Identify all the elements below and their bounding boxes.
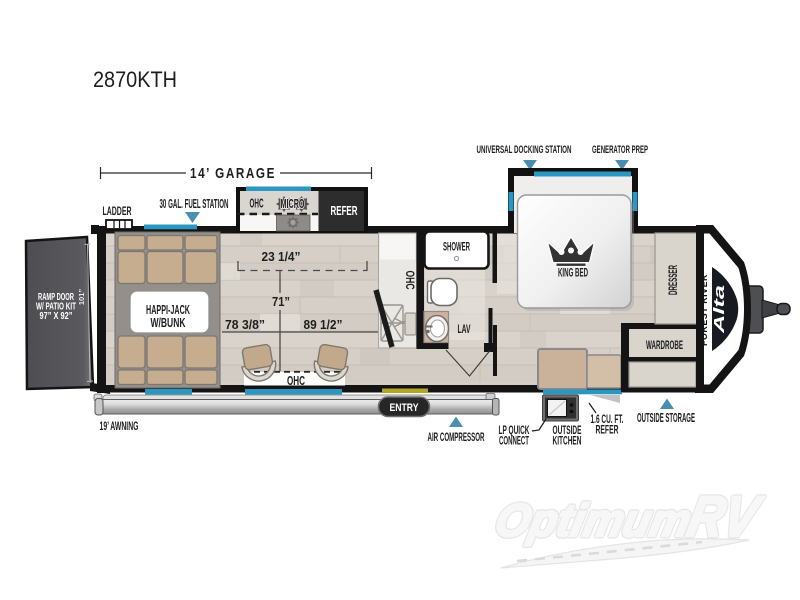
svg-text:DRESSER: DRESSER: [668, 265, 680, 295]
svg-text:OHC: OHC: [250, 196, 264, 211]
svg-text:Alta: Alta: [711, 285, 728, 335]
svg-text:OHC: OHC: [287, 373, 305, 388]
svg-text:W/BUNK: W/BUNK: [151, 315, 186, 330]
svg-text:97” X 92”: 97” X 92”: [40, 311, 73, 322]
svg-text:23 1/4”: 23 1/4”: [262, 249, 301, 264]
svg-text:14’ GARAGE: 14’ GARAGE: [190, 165, 276, 182]
svg-text:71”: 71”: [272, 294, 290, 309]
svg-text:19’ AWNING: 19’ AWNING: [100, 419, 139, 433]
svg-text:WARDROBE: WARDROBE: [646, 340, 683, 352]
svg-text:LAV: LAV: [458, 322, 471, 336]
svg-text:OHC: OHC: [403, 271, 417, 290]
svg-text:UNIVERSAL DOCKING STATION: UNIVERSAL DOCKING STATION: [477, 144, 572, 156]
svg-text:CONNECT: CONNECT: [499, 436, 529, 448]
svg-text:89 1/2”: 89 1/2”: [304, 317, 343, 332]
svg-text:LADDER: LADDER: [103, 204, 132, 218]
svg-text:AIR COMPRESSOR: AIR COMPRESSOR: [428, 430, 485, 444]
svg-text:SHOWER: SHOWER: [443, 240, 470, 254]
svg-text:KITCHEN: KITCHEN: [553, 436, 582, 448]
svg-text:MICRO: MICRO: [281, 197, 305, 211]
svg-text:30 GAL. FUEL STATION: 30 GAL. FUEL STATION: [160, 196, 229, 211]
svg-text:Optimum: Optimum: [491, 494, 696, 545]
svg-text:101”: 101”: [77, 289, 86, 306]
svg-text:ENTRY: ENTRY: [390, 402, 420, 414]
svg-text:2870KTH: 2870KTH: [93, 67, 177, 92]
svg-text:FOREST RIVER: FOREST RIVER: [699, 274, 710, 346]
svg-text:REFER: REFER: [331, 204, 358, 218]
svg-text:78 3/8”: 78 3/8”: [225, 317, 265, 332]
svg-text:KING BED: KING BED: [558, 268, 588, 280]
svg-text:GENERATOR PREP: GENERATOR PREP: [592, 144, 648, 156]
svg-text:OUTSIDE STORAGE: OUTSIDE STORAGE: [637, 410, 695, 425]
svg-text:REFER: REFER: [596, 425, 619, 437]
